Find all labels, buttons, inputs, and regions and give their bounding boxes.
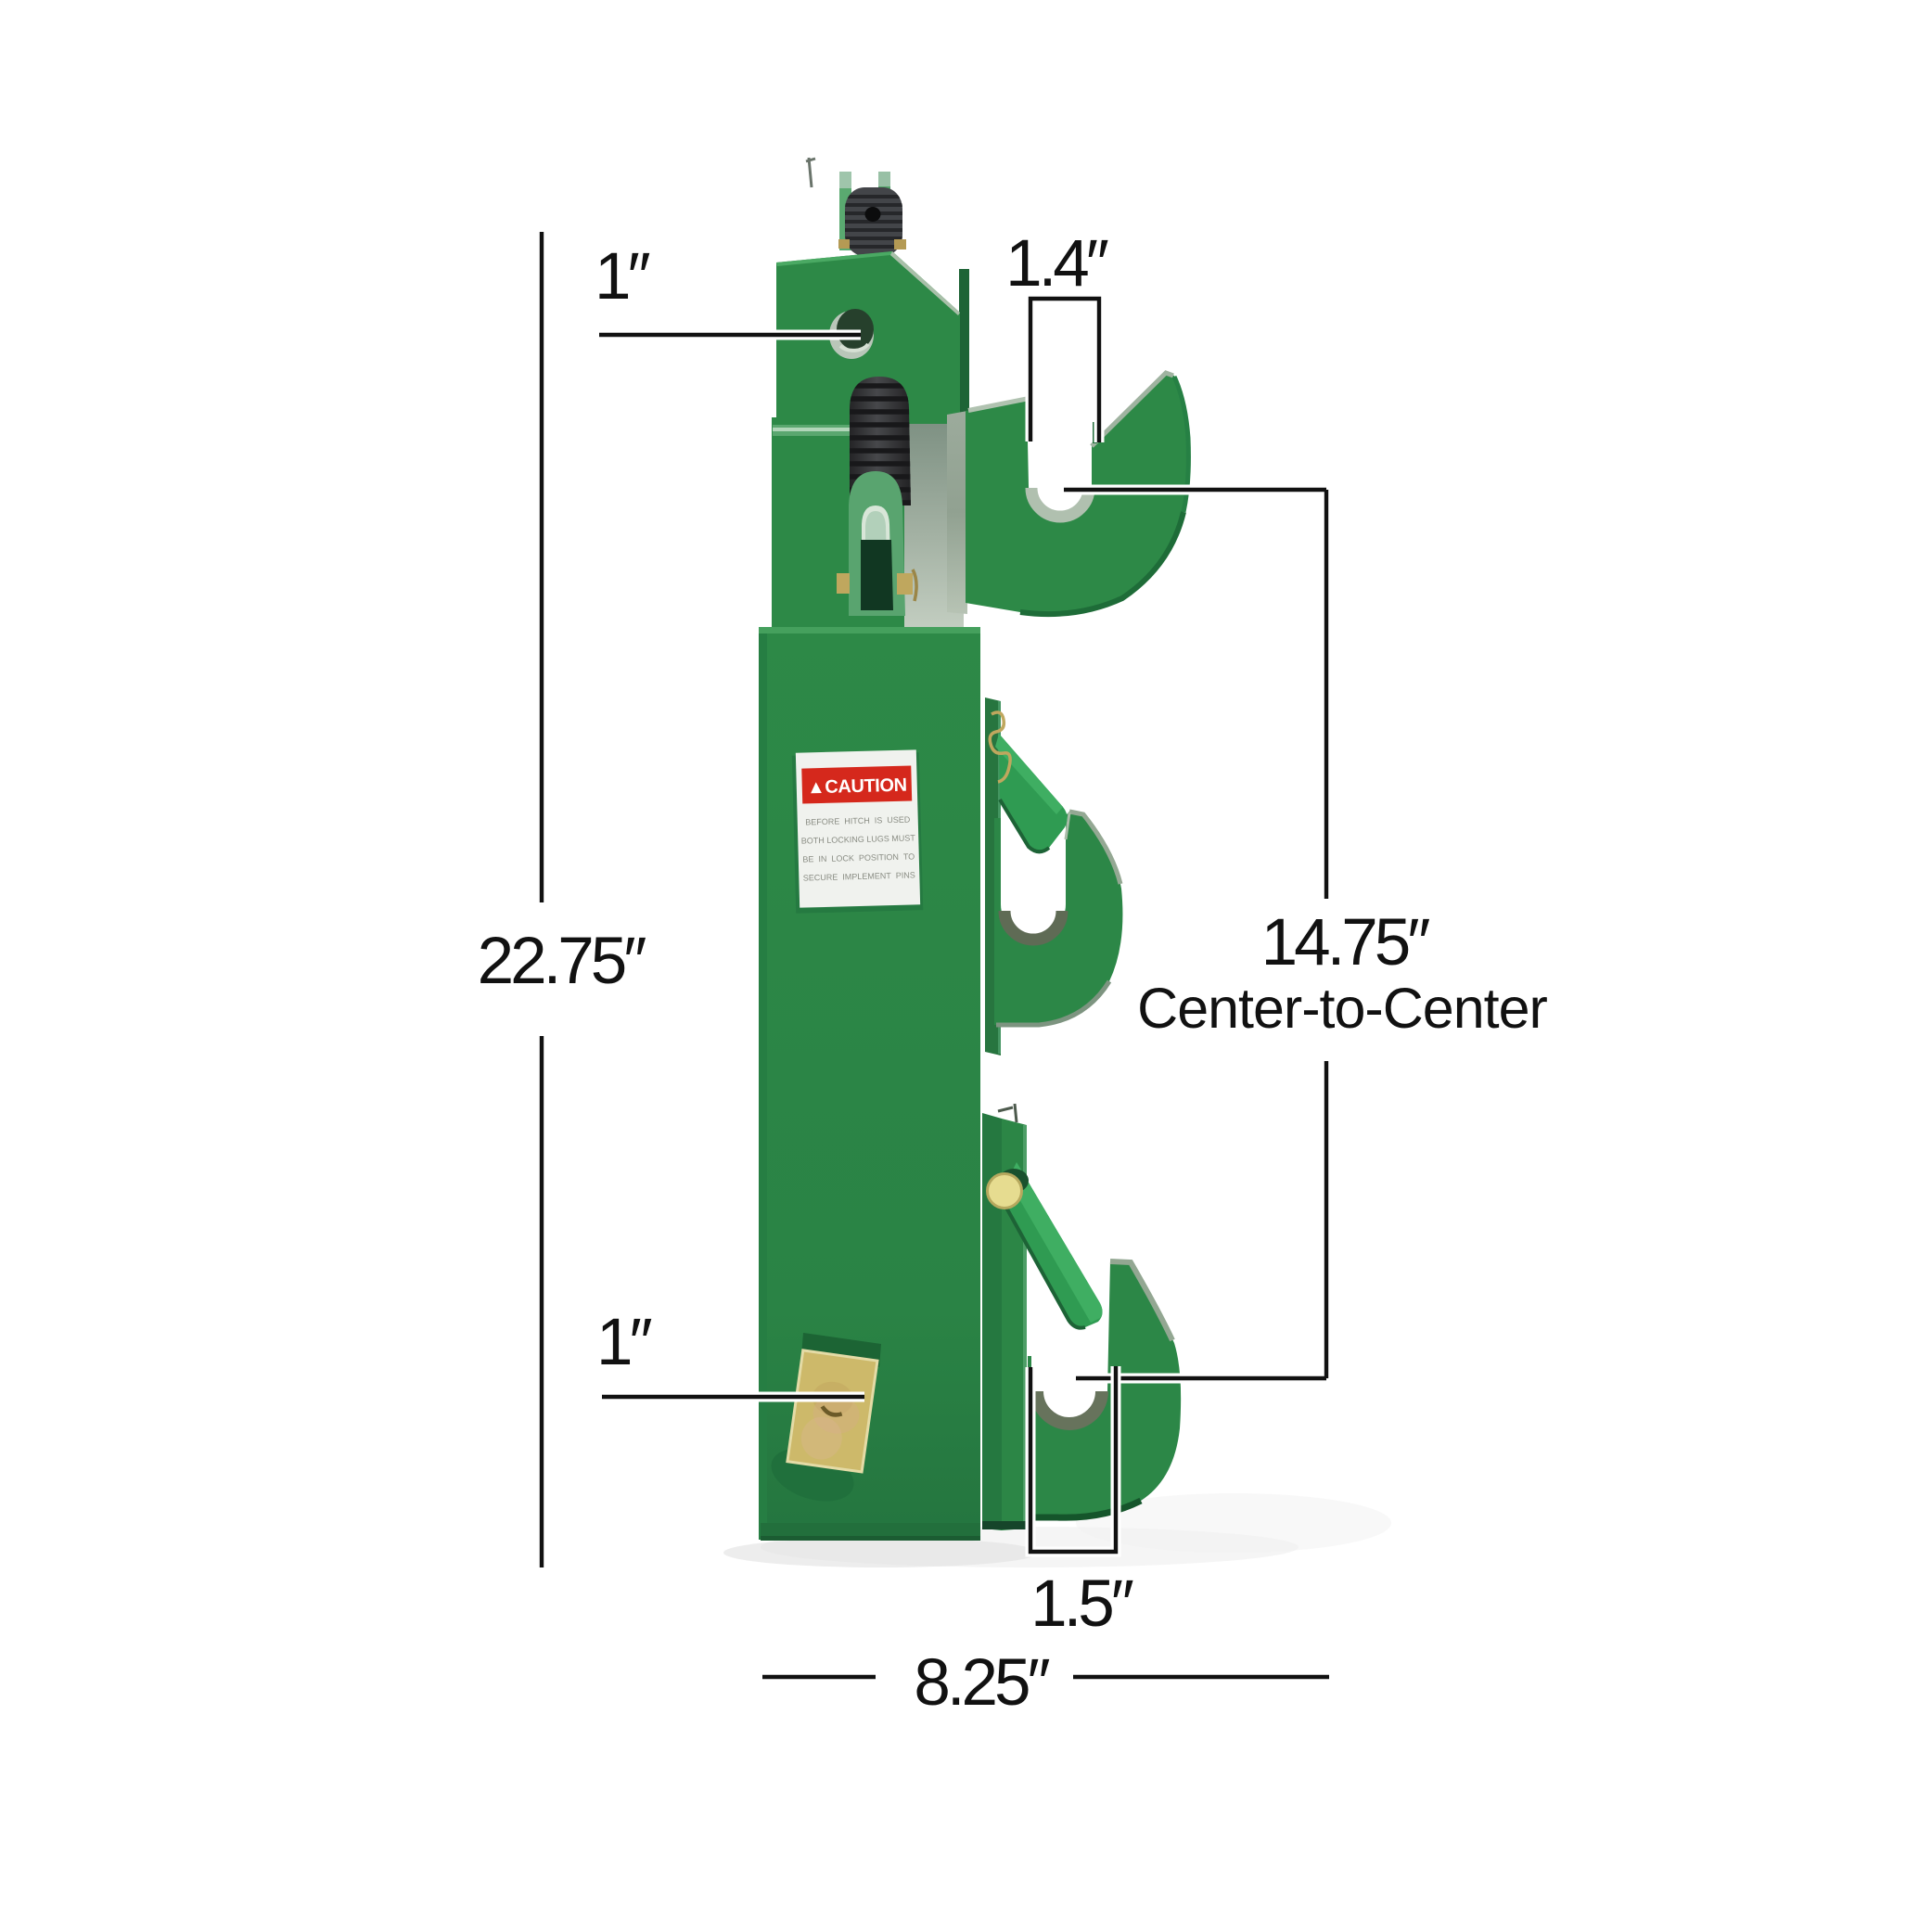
svg-text:14.75″: 14.75″ — [1261, 906, 1430, 979]
svg-text:1.5″: 1.5″ — [1030, 1567, 1133, 1641]
svg-text:1.4″: 1.4″ — [1005, 227, 1108, 301]
svg-text:1″: 1″ — [596, 1306, 651, 1379]
svg-text:▲CAUTION: ▲CAUTION — [807, 775, 907, 799]
svg-text:1″: 1″ — [595, 240, 649, 313]
svg-text:22.75″: 22.75″ — [478, 925, 646, 998]
svg-text:8.25″: 8.25″ — [914, 1646, 1049, 1720]
svg-text:Center-to-Center: Center-to-Center — [1137, 977, 1547, 1040]
